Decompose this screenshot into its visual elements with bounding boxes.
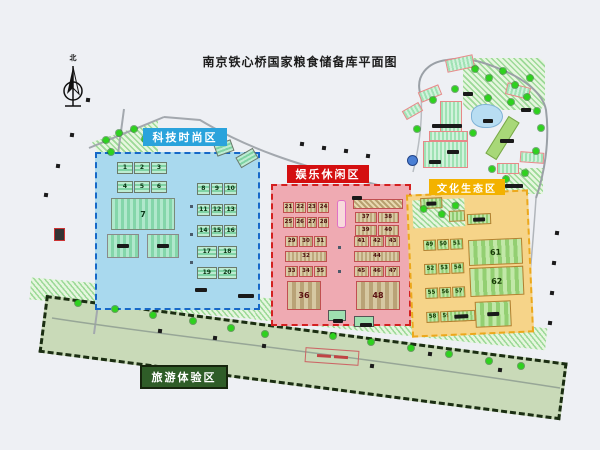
tree-icon — [524, 94, 530, 100]
tree-icon — [408, 345, 414, 351]
building-56: 56 — [439, 287, 452, 299]
building-25: 25 — [283, 217, 294, 228]
building-row: 555657 — [425, 286, 465, 299]
building-row: 414243 — [354, 236, 400, 247]
campus-building — [497, 163, 519, 174]
building-5: 5 — [134, 181, 150, 193]
fountain-icon — [407, 155, 418, 166]
fun-left-top-rows: 2122232425262728 — [283, 202, 329, 228]
building-52: 52 — [424, 263, 437, 275]
warehouse-unlabeled — [235, 148, 258, 168]
zone-technology-fashion: 123456 7 891011121314151617181920 — [95, 152, 260, 310]
building-row: 525354 — [424, 262, 464, 275]
road-name-character — [213, 336, 218, 341]
illegible-label — [483, 119, 493, 123]
road-name-character — [322, 146, 327, 151]
tree-icon — [470, 130, 476, 136]
illegible-label — [338, 246, 341, 249]
fun-right-top-rows: 37383940 — [355, 212, 399, 236]
building-46: 46 — [370, 266, 385, 277]
tree-icon — [75, 300, 81, 306]
building-12: 12 — [211, 204, 224, 216]
corridor-marker — [337, 200, 346, 228]
label-technology-fashion-zone: 科技时尚区 — [143, 128, 227, 146]
building-43: 43 — [385, 236, 400, 247]
hatched-structure — [353, 199, 403, 209]
building-row: 3940 — [355, 225, 399, 236]
building-27: 27 — [307, 217, 318, 228]
building-26: 26 — [295, 217, 306, 228]
road-name-character — [555, 231, 560, 236]
building-row: 123 — [117, 162, 167, 174]
building-19: 19 — [197, 267, 217, 279]
building-30: 30 — [299, 236, 312, 247]
tree-icon — [190, 318, 196, 324]
tree-icon — [500, 68, 506, 74]
building-54: 54 — [451, 262, 464, 274]
tree-icon — [368, 339, 374, 345]
tree-icon — [262, 331, 268, 337]
warehouse-unlabeled — [147, 234, 179, 258]
building-row: 141516 — [197, 225, 237, 237]
building-35: 35 — [314, 266, 327, 277]
road-name-character — [428, 352, 433, 357]
north-label: 北 — [56, 55, 90, 62]
building-28: 28 — [318, 217, 329, 228]
building-16: 16 — [224, 225, 237, 237]
building-11: 11 — [197, 204, 210, 216]
building-row: 32 — [285, 251, 327, 262]
illegible-label — [190, 233, 193, 236]
road-name-character — [70, 133, 75, 138]
label-culture-ecology-zone: 文化生态区 — [429, 179, 505, 195]
building-39: 39 — [355, 225, 377, 236]
building-9: 9 — [211, 183, 224, 195]
building-48: 48 — [356, 281, 400, 310]
campus-building — [440, 101, 462, 133]
tree-icon — [131, 126, 137, 132]
warehouse-unlabeled — [449, 210, 465, 222]
tree-icon — [538, 125, 544, 131]
building-row: 454647 — [354, 266, 400, 277]
building-50: 50 — [437, 239, 450, 251]
road-name-character — [498, 368, 503, 373]
road-name-character — [344, 149, 349, 154]
road-name-character — [548, 321, 553, 326]
tech-annex-warehouses — [107, 234, 179, 258]
illegible-label — [505, 184, 523, 188]
tree-icon — [533, 148, 539, 154]
illegible-label — [521, 108, 531, 112]
building-34: 34 — [299, 266, 312, 277]
building-40: 40 — [378, 225, 400, 236]
building-53: 53 — [438, 263, 451, 275]
building-row: 8910 — [197, 183, 237, 195]
illegible-label — [447, 150, 459, 154]
road-name-character — [370, 364, 375, 369]
tree-icon — [103, 137, 109, 143]
building-38: 38 — [378, 212, 400, 223]
illegible-label — [195, 288, 207, 292]
building-14: 14 — [197, 225, 210, 237]
campus-building — [429, 131, 468, 141]
building-42: 42 — [370, 236, 385, 247]
building-7: 7 — [111, 198, 175, 230]
office-building — [447, 310, 475, 322]
tree-icon — [522, 170, 528, 176]
building-22: 22 — [295, 202, 306, 213]
building-18: 18 — [218, 246, 238, 258]
building-20: 20 — [218, 267, 238, 279]
tree-icon — [116, 130, 122, 136]
building-21: 21 — [283, 202, 294, 213]
compass-north-icon: 北 — [56, 55, 90, 114]
site-plan: 北 南京铁心桥国家粮食储备库平面图 123456 7 8910111213141… — [0, 0, 600, 450]
building-row: 495051 — [423, 238, 463, 251]
building-33: 33 — [285, 266, 298, 277]
tree-icon — [485, 95, 491, 101]
road-name-character — [550, 291, 555, 296]
pond — [471, 104, 503, 128]
building-15: 15 — [211, 225, 224, 237]
zone-culture-ecology: 495051525354555657585960 61 62 — [406, 189, 534, 337]
illegible-label — [352, 196, 362, 200]
building-row: 333435 — [285, 266, 327, 277]
building-8: 8 — [197, 183, 210, 195]
gate-marker — [54, 228, 65, 241]
building-57: 57 — [452, 286, 465, 298]
tree-icon — [486, 75, 492, 81]
illegible-label — [333, 319, 343, 323]
building-23: 23 — [307, 202, 318, 213]
building-4: 4 — [117, 181, 133, 193]
illegible-label — [238, 294, 254, 298]
tree-icon — [228, 325, 234, 331]
building-row: 44 — [354, 251, 400, 262]
building-51: 51 — [450, 238, 463, 250]
building-row: 293031 — [285, 236, 327, 247]
building-62: 62 — [469, 266, 524, 297]
building-row: 1920 — [197, 267, 237, 279]
building-31: 31 — [314, 236, 327, 247]
building-32: 32 — [285, 251, 327, 262]
building-13: 13 — [224, 204, 237, 216]
tree-icon — [150, 312, 156, 318]
building-row: 456 — [117, 181, 167, 193]
building-2: 2 — [134, 162, 150, 174]
campus-building — [402, 102, 423, 120]
building-44: 44 — [354, 251, 400, 262]
road-name-character — [552, 261, 557, 266]
illegible-label — [463, 92, 473, 96]
label-entertainment-leisure-zone: 娱乐休闲区 — [287, 165, 369, 183]
tree-icon — [446, 351, 452, 357]
building-1: 1 — [117, 162, 133, 174]
road-name-character — [158, 329, 163, 334]
building-row: 25262728 — [283, 217, 329, 228]
building-29: 29 — [285, 236, 298, 247]
illegible-label — [432, 124, 462, 128]
tree-icon — [489, 166, 495, 172]
building-24: 24 — [318, 202, 329, 213]
tree-icon — [452, 86, 458, 92]
building-row: 21222324 — [283, 202, 329, 213]
fun-left-mid-rows: 29303132333435 — [285, 236, 327, 277]
illegible-label — [360, 323, 372, 327]
building-row: 3738 — [355, 212, 399, 223]
road-name-character — [56, 164, 61, 169]
road-name-character — [366, 154, 371, 159]
illegible-label — [338, 270, 341, 273]
tree-icon — [112, 306, 118, 312]
tech-left-warehouse-rows: 123456 — [117, 162, 167, 193]
campus-building — [520, 151, 545, 164]
building-61: 61 — [468, 238, 523, 266]
road-name-character — [262, 344, 267, 349]
building-36: 36 — [287, 281, 321, 310]
road-name-character — [44, 193, 49, 198]
building-41: 41 — [354, 236, 369, 247]
page-title: 南京铁心桥国家粮食储备库平面图 — [150, 53, 450, 70]
building-10: 10 — [224, 183, 237, 195]
building-3: 3 — [151, 162, 167, 174]
tree-icon — [430, 97, 436, 103]
tree-icon — [414, 126, 420, 132]
tree-icon — [508, 99, 514, 105]
fun-right-mid-rows: 41424344454647 — [354, 236, 400, 277]
tree-icon — [330, 333, 336, 339]
illegible-label — [190, 261, 193, 264]
illegible-label — [429, 160, 441, 164]
l-shaped-building — [475, 300, 512, 328]
building-55: 55 — [425, 287, 438, 299]
road-name-character — [300, 142, 305, 147]
illegible-label — [500, 139, 514, 143]
zone-entertainment-leisure: 2122232425262728 29303132333435 36 37383… — [271, 184, 411, 326]
tree-icon — [512, 82, 518, 88]
tree-icon — [527, 75, 533, 81]
illegible-label — [190, 205, 193, 208]
tree-icon — [472, 66, 478, 72]
building-45: 45 — [354, 266, 369, 277]
warehouse-unlabeled — [107, 234, 139, 258]
building-17: 17 — [197, 246, 217, 258]
tech-right-warehouse-rows: 891011121314151617181920 — [197, 183, 237, 279]
building-49: 49 — [423, 239, 436, 251]
building-row: 1718 — [197, 246, 237, 258]
tree-icon — [518, 363, 524, 369]
building-37: 37 — [355, 212, 377, 223]
tree-icon — [108, 149, 114, 155]
warehouse-unlabeled — [467, 213, 491, 225]
building-58: 58 — [426, 311, 439, 323]
tree-icon — [486, 358, 492, 364]
label-tourism-experience-zone: 旅游体验区 — [140, 365, 228, 389]
building-row: 111213 — [197, 204, 237, 216]
building-47: 47 — [385, 266, 400, 277]
building-6: 6 — [151, 181, 167, 193]
tree-icon — [534, 108, 540, 114]
